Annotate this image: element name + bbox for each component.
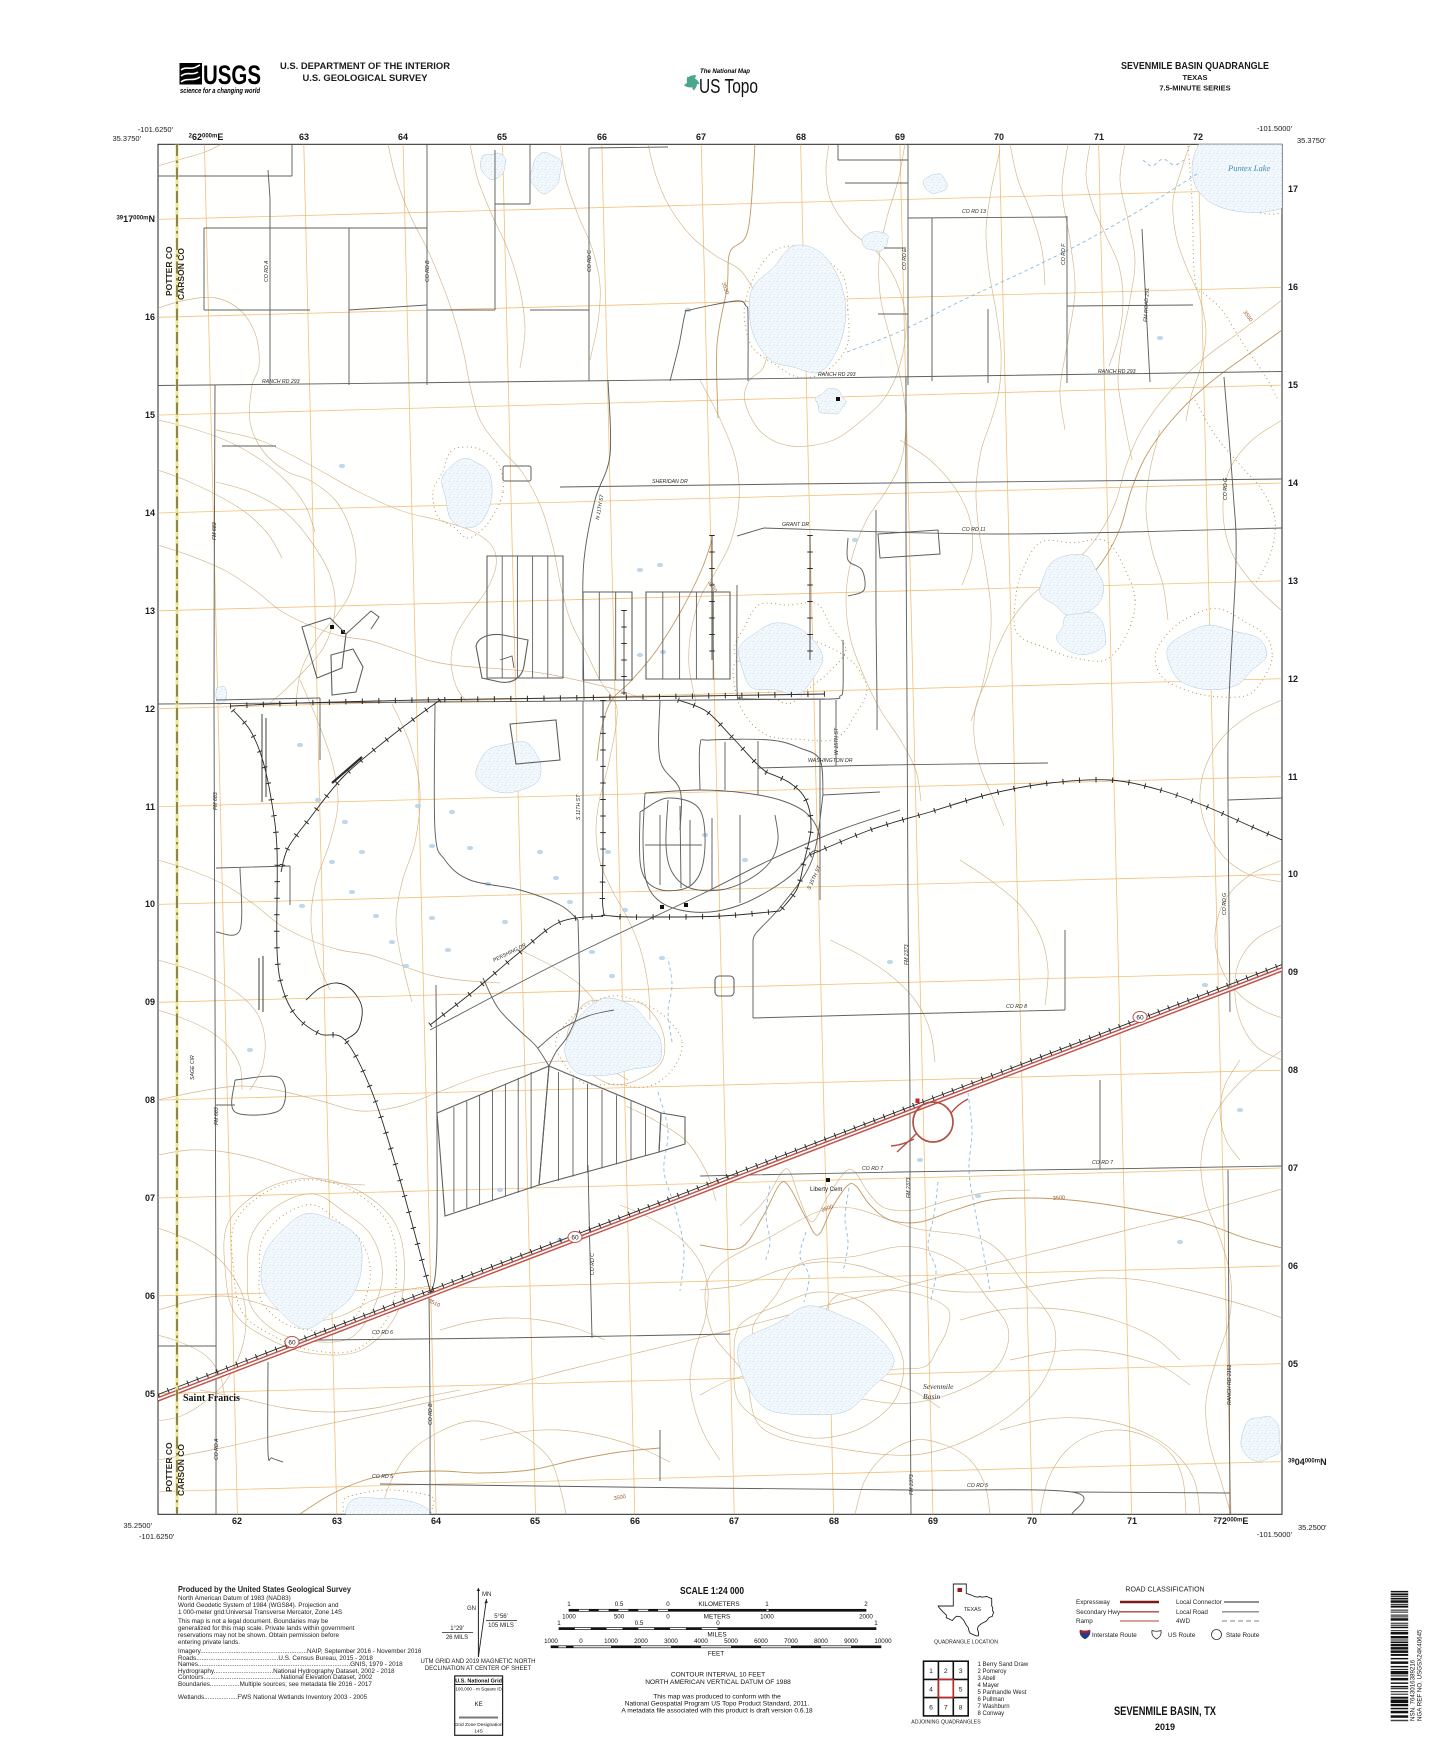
- svg-text:This map was produced to confo: This map was produced to conform with th…: [653, 1694, 781, 1701]
- svg-text:8000: 8000: [814, 1638, 828, 1645]
- svg-text:NORTH AMERICAN VERTICAL DATUM: NORTH AMERICAN VERTICAL DATUM OF 1988: [645, 1679, 791, 1686]
- svg-text:W 15TH ST: W 15TH ST: [834, 727, 840, 755]
- svg-text:5: 5: [959, 1687, 963, 1694]
- svg-text:CO RD C: CO RD C: [590, 1253, 596, 1275]
- svg-text:71: 71: [1094, 132, 1104, 142]
- svg-text:WASHINGTON DR: WASHINGTON DR: [808, 758, 853, 764]
- svg-text:Local Road: Local Road: [1176, 1609, 1208, 1616]
- svg-text:0: 0: [666, 1614, 670, 1621]
- svg-text:08: 08: [1288, 1065, 1298, 1075]
- svg-text:0: 0: [666, 1601, 670, 1608]
- svg-text:8 Conway: 8 Conway: [978, 1711, 1005, 1717]
- svg-text:CO RD A: CO RD A: [214, 1438, 220, 1460]
- svg-text:1 Berry Sand Draw: 1 Berry Sand Draw: [978, 1662, 1029, 1668]
- svg-text:Produced by the United States: Produced by the United States Geological…: [178, 1584, 351, 1594]
- svg-text:FM 683: FM 683: [212, 522, 218, 540]
- svg-text:0.5: 0.5: [635, 1620, 644, 1627]
- svg-text:3: 3: [959, 1668, 963, 1675]
- svg-text:1000: 1000: [604, 1638, 618, 1645]
- svg-text:06: 06: [1288, 1261, 1298, 1271]
- svg-text:US Route: US Route: [1168, 1632, 1196, 1639]
- svg-text:12: 12: [145, 704, 155, 714]
- svg-text:11: 11: [1288, 772, 1298, 782]
- svg-text:Basin: Basin: [923, 1392, 940, 1401]
- svg-text:U.S. GEOLOGICAL SURVEY: U.S. GEOLOGICAL SURVEY: [303, 73, 429, 84]
- svg-text:1: 1: [567, 1601, 571, 1608]
- svg-text:4: 4: [929, 1687, 933, 1694]
- svg-text:CO RD F: CO RD F: [1061, 243, 1067, 265]
- svg-text:TEXAS: TEXAS: [1182, 73, 1207, 82]
- svg-text:Puntex Lake: Puntex Lake: [1227, 163, 1270, 173]
- svg-text:14: 14: [145, 508, 155, 518]
- svg-text:SEVENMILE BASIN QUADRANGLE: SEVENMILE BASIN QUADRANGLE: [1121, 61, 1269, 72]
- svg-text:RANCH RD 293: RANCH RD 293: [262, 379, 300, 385]
- svg-text:National Geospatial Program US: National Geospatial Program US Topo Prod…: [625, 1701, 810, 1708]
- svg-text:500: 500: [614, 1614, 625, 1621]
- svg-text:FM 683: FM 683: [213, 792, 219, 810]
- svg-text:Saint Francis: Saint Francis: [183, 1393, 240, 1404]
- svg-text:5°56′: 5°56′: [494, 1614, 508, 1620]
- svg-text:35.2500′: 35.2500′: [123, 1521, 152, 1530]
- svg-text:This map is not a legal docume: This map is not a legal document. Bounda…: [178, 1618, 329, 1625]
- svg-text:1: 1: [929, 1668, 933, 1675]
- svg-text:CO RD 13: CO RD 13: [962, 209, 986, 215]
- svg-text:4 Mayer: 4 Mayer: [978, 1683, 1000, 1689]
- svg-text:15: 15: [1288, 380, 1298, 390]
- svg-text:69: 69: [928, 1516, 938, 1526]
- svg-text:12: 12: [1288, 674, 1298, 684]
- svg-text:RANCH RD 293: RANCH RD 293: [1098, 369, 1136, 375]
- svg-text:Grid Zone Designation: Grid Zone Designation: [455, 1722, 503, 1728]
- svg-text:4000: 4000: [694, 1638, 708, 1645]
- svg-text:35.3750′: 35.3750′: [1297, 136, 1326, 145]
- svg-text:100,000 - m Square ID: 100,000 - m Square ID: [455, 1687, 502, 1692]
- svg-text:5000: 5000: [724, 1638, 738, 1645]
- svg-text:7: 7: [944, 1705, 948, 1712]
- svg-text:6 Pullman: 6 Pullman: [978, 1697, 1005, 1703]
- svg-text:62: 62: [232, 1516, 242, 1526]
- svg-text:Liberty Cem: Liberty Cem: [810, 1187, 842, 1193]
- svg-text:FM 2373: FM 2373: [906, 1177, 912, 1198]
- svg-text:70: 70: [994, 132, 1004, 142]
- svg-text:07: 07: [1288, 1163, 1298, 1173]
- svg-text:6000: 6000: [754, 1638, 768, 1645]
- svg-text:1°29′: 1°29′: [450, 1626, 464, 1632]
- svg-text:0: 0: [579, 1638, 583, 1645]
- svg-text:CO RD 5: CO RD 5: [372, 1474, 393, 1480]
- svg-text:63: 63: [299, 132, 309, 142]
- svg-text:67: 67: [729, 1516, 739, 1526]
- svg-text:DECLINATION AT CENTER OF SHEET: DECLINATION AT CENTER OF SHEET: [425, 1666, 532, 1672]
- svg-text:North American Datum of 1983 (: North American Datum of 1983 (NAD83): [178, 1595, 291, 1602]
- svg-text:A metadata file associated wit: A metadata file associated with this pro…: [621, 1708, 813, 1715]
- svg-text:-101.5000′: -101.5000′: [1257, 124, 1293, 133]
- svg-text:Ramp: Ramp: [1076, 1618, 1093, 1625]
- svg-text:68: 68: [829, 1516, 839, 1526]
- svg-text:TEXAS: TEXAS: [964, 1607, 982, 1613]
- svg-text:CO RD 6: CO RD 6: [372, 1330, 393, 1336]
- svg-text:60: 60: [571, 1235, 579, 1242]
- svg-text:16: 16: [1288, 282, 1298, 292]
- svg-text:Interstate Route: Interstate Route: [1092, 1632, 1137, 1639]
- svg-text:08: 08: [145, 1095, 155, 1105]
- svg-text:0.5: 0.5: [615, 1601, 624, 1608]
- svg-text:10: 10: [1288, 869, 1298, 879]
- svg-text:U.S. National Grid: U.S. National Grid: [455, 1679, 502, 1685]
- svg-text:CARSON CO: CARSON CO: [176, 1444, 186, 1496]
- svg-text:11: 11: [145, 802, 155, 812]
- svg-text:S 11TH ST: S 11TH ST: [576, 794, 582, 820]
- svg-text:RANCH RD 2161: RANCH RD 2161: [1227, 1365, 1233, 1405]
- svg-text:KE: KE: [475, 1702, 483, 1708]
- svg-text:06: 06: [145, 1291, 155, 1301]
- svg-text:SCALE 1:24 000: SCALE 1:24 000: [680, 1586, 744, 1597]
- svg-text:70: 70: [1027, 1516, 1037, 1526]
- svg-text:CO RD A: CO RD A: [264, 260, 270, 282]
- svg-text:7 Washburn: 7 Washburn: [978, 1704, 1010, 1710]
- svg-text:CO RD C: CO RD C: [587, 250, 593, 272]
- svg-text:7000: 7000: [784, 1638, 798, 1645]
- svg-text:CO RD 7: CO RD 7: [862, 1166, 884, 1172]
- svg-text:17: 17: [1288, 184, 1298, 194]
- svg-text:63: 63: [332, 1516, 342, 1526]
- svg-text:14: 14: [1288, 478, 1298, 488]
- svg-text:USGS: USGS: [203, 60, 261, 90]
- svg-text:Local Connector: Local Connector: [1176, 1599, 1222, 1606]
- svg-text:NGA REF NO. USGSX24K40645: NGA REF NO. USGSX24K40645: [1417, 1629, 1424, 1721]
- svg-text:MN: MN: [482, 1592, 491, 1598]
- svg-text:CO RD 7: CO RD 7: [1092, 1160, 1114, 1166]
- svg-text:Names.........................: Names...................................…: [178, 1661, 403, 1668]
- svg-text:05: 05: [145, 1389, 155, 1399]
- svg-text:POTTER CO: POTTER CO: [164, 1442, 174, 1492]
- svg-text:26 MILS: 26 MILS: [446, 1635, 468, 1641]
- svg-text:CO RD E: CO RD E: [902, 248, 908, 270]
- svg-text:GN: GN: [467, 1606, 476, 1612]
- svg-text:GRANT DR: GRANT DR: [782, 522, 809, 528]
- svg-text:FEET: FEET: [708, 1650, 724, 1657]
- svg-text:CO RD 8: CO RD 8: [1006, 1004, 1027, 1010]
- svg-text:3000: 3000: [664, 1638, 678, 1645]
- svg-text:The National Map: The National Map: [700, 69, 750, 75]
- svg-text:FM 683: FM 683: [214, 1107, 220, 1125]
- svg-text:Imagery.......................: Imagery.................................…: [178, 1648, 422, 1655]
- svg-text:CARSON CO: CARSON CO: [176, 248, 186, 300]
- svg-text:1000: 1000: [562, 1614, 576, 1621]
- svg-text:66: 66: [630, 1516, 640, 1526]
- svg-text:U.S. DEPARTMENT OF THE INTERIO: U.S. DEPARTMENT OF THE INTERIOR: [280, 61, 450, 72]
- svg-text:10000: 10000: [874, 1638, 892, 1645]
- svg-text:6: 6: [929, 1705, 933, 1712]
- svg-text:POTTER CO: POTTER CO: [164, 246, 174, 296]
- svg-text:Expressway: Expressway: [1076, 1599, 1111, 1606]
- svg-text:CO RD B: CO RD B: [428, 1403, 434, 1425]
- svg-text:1000: 1000: [760, 1614, 774, 1621]
- svg-text:science for a changing world: science for a changing world: [180, 88, 261, 95]
- svg-text:09: 09: [145, 997, 155, 1007]
- svg-text:CO RD B: CO RD B: [425, 260, 431, 282]
- svg-text:2: 2: [944, 1668, 948, 1675]
- svg-text:FM 2373: FM 2373: [909, 1474, 915, 1495]
- svg-text:1: 1: [874, 1620, 878, 1627]
- svg-text:ADJOINING QUADRANGLES: ADJOINING QUADRANGLES: [911, 1720, 981, 1726]
- svg-text:13: 13: [145, 606, 155, 616]
- svg-text:8: 8: [959, 1705, 963, 1712]
- svg-text:Boundaries.................Mul: Boundaries.................Multiple sour…: [178, 1681, 372, 1688]
- svg-text:CO RD 11: CO RD 11: [962, 527, 986, 533]
- svg-text:4WD: 4WD: [1176, 1618, 1190, 1625]
- svg-text:Secondary Hwy: Secondary Hwy: [1076, 1609, 1121, 1616]
- svg-text:13: 13: [1288, 576, 1298, 586]
- svg-text:16: 16: [145, 312, 155, 322]
- svg-text:World Geodetic System of 1984: World Geodetic System of 1984 (WGS84). P…: [178, 1602, 339, 1609]
- svg-text:QUADRANGLE LOCATION: QUADRANGLE LOCATION: [934, 1640, 998, 1646]
- svg-text:35.2500′: 35.2500′: [1298, 1523, 1327, 1532]
- svg-text:105 MILS: 105 MILS: [488, 1623, 514, 1629]
- svg-text:Sevenmile: Sevenmile: [923, 1382, 954, 1391]
- svg-text:generalized for this map scale: generalized for this map scale. Private …: [178, 1625, 355, 1632]
- svg-text:FM 2373: FM 2373: [904, 944, 910, 965]
- svg-text:CO RD G: CO RD G: [1222, 893, 1228, 915]
- svg-text:CONTOUR INTERVAL 10 FEET: CONTOUR INTERVAL 10 FEET: [671, 1672, 765, 1679]
- svg-text:2000: 2000: [859, 1614, 873, 1621]
- svg-text:-101.6250′: -101.6250′: [139, 1532, 175, 1541]
- svg-text:69: 69: [895, 132, 905, 142]
- svg-text:35.3750′: 35.3750′: [112, 134, 141, 143]
- svg-text:State Route: State Route: [1226, 1632, 1260, 1639]
- svg-text:3500: 3500: [1053, 1195, 1066, 1202]
- svg-text:1000: 1000: [544, 1638, 558, 1645]
- svg-text:NSN. 7643016389216: NSN. 7643016389216: [1410, 1659, 1417, 1721]
- svg-text:05: 05: [1288, 1359, 1298, 1369]
- svg-text:60: 60: [1136, 1015, 1144, 1022]
- svg-text:1 000-meter grid:Universal Tra: 1 000-meter grid:Universal Transverse Me…: [178, 1609, 342, 1616]
- svg-text:SAGE CIR: SAGE CIR: [190, 1055, 196, 1080]
- svg-text:72: 72: [1193, 132, 1203, 142]
- svg-text:71: 71: [1127, 1516, 1137, 1526]
- svg-text:2 Pomeroy: 2 Pomeroy: [978, 1669, 1007, 1675]
- svg-text:0: 0: [716, 1620, 720, 1627]
- svg-text:CO RD G: CO RD G: [1223, 478, 1229, 500]
- svg-text:UTM GRID AND 2019 MAGNETIC NOR: UTM GRID AND 2019 MAGNETIC NORTH: [421, 1659, 536, 1665]
- svg-text:66: 66: [597, 132, 607, 142]
- svg-text:9000: 9000: [844, 1638, 858, 1645]
- svg-text:2000: 2000: [634, 1638, 648, 1645]
- svg-text:64: 64: [431, 1516, 441, 1526]
- svg-text:60: 60: [288, 1340, 296, 1347]
- svg-text:RANCH RD 293: RANCH RD 293: [818, 372, 856, 378]
- svg-text:3 Abell: 3 Abell: [978, 1676, 996, 1682]
- svg-text:entering private lands.: entering private lands.: [178, 1639, 240, 1646]
- svg-text:Contours......................: Contours................................…: [178, 1674, 373, 1681]
- svg-text:14S: 14S: [474, 1729, 483, 1735]
- svg-text:65: 65: [530, 1516, 540, 1526]
- svg-text:65: 65: [497, 132, 507, 142]
- svg-text:1: 1: [557, 1620, 561, 1627]
- svg-text:7.5-MINUTE SERIES: 7.5-MINUTE SERIES: [1159, 84, 1230, 93]
- svg-text:reservations may not be shown.: reservations may not be shown. Obtain pe…: [178, 1632, 339, 1639]
- svg-text:15: 15: [145, 410, 155, 420]
- svg-text:ROAD CLASSIFICATION: ROAD CLASSIFICATION: [1125, 1587, 1204, 1594]
- svg-text:SHERIDAN DR: SHERIDAN DR: [652, 479, 688, 485]
- svg-text:2019: 2019: [1155, 1722, 1175, 1732]
- svg-text:09: 09: [1288, 967, 1298, 977]
- svg-text:CO RD 5: CO RD 5: [967, 1483, 988, 1489]
- svg-text:US Topo: US Topo: [699, 76, 758, 98]
- svg-text:10: 10: [145, 899, 155, 909]
- svg-text:-101.6250′: -101.6250′: [138, 125, 174, 134]
- svg-text:64: 64: [398, 132, 408, 142]
- svg-text:07: 07: [145, 1193, 155, 1203]
- svg-text:1: 1: [765, 1601, 769, 1608]
- svg-text:Wetlands...................FWS: Wetlands...................FWS National …: [178, 1694, 368, 1701]
- svg-text:-101.5000′: -101.5000′: [1257, 1530, 1293, 1539]
- svg-text:68: 68: [796, 132, 806, 142]
- svg-text:67: 67: [696, 132, 706, 142]
- svg-text:5 Panhandle West: 5 Panhandle West: [978, 1690, 1027, 1696]
- svg-text:SEVENMILE BASIN, TX: SEVENMILE BASIN, TX: [1114, 1704, 1216, 1718]
- svg-text:KILOMETERS: KILOMETERS: [698, 1601, 739, 1608]
- svg-text:2: 2: [864, 1601, 868, 1608]
